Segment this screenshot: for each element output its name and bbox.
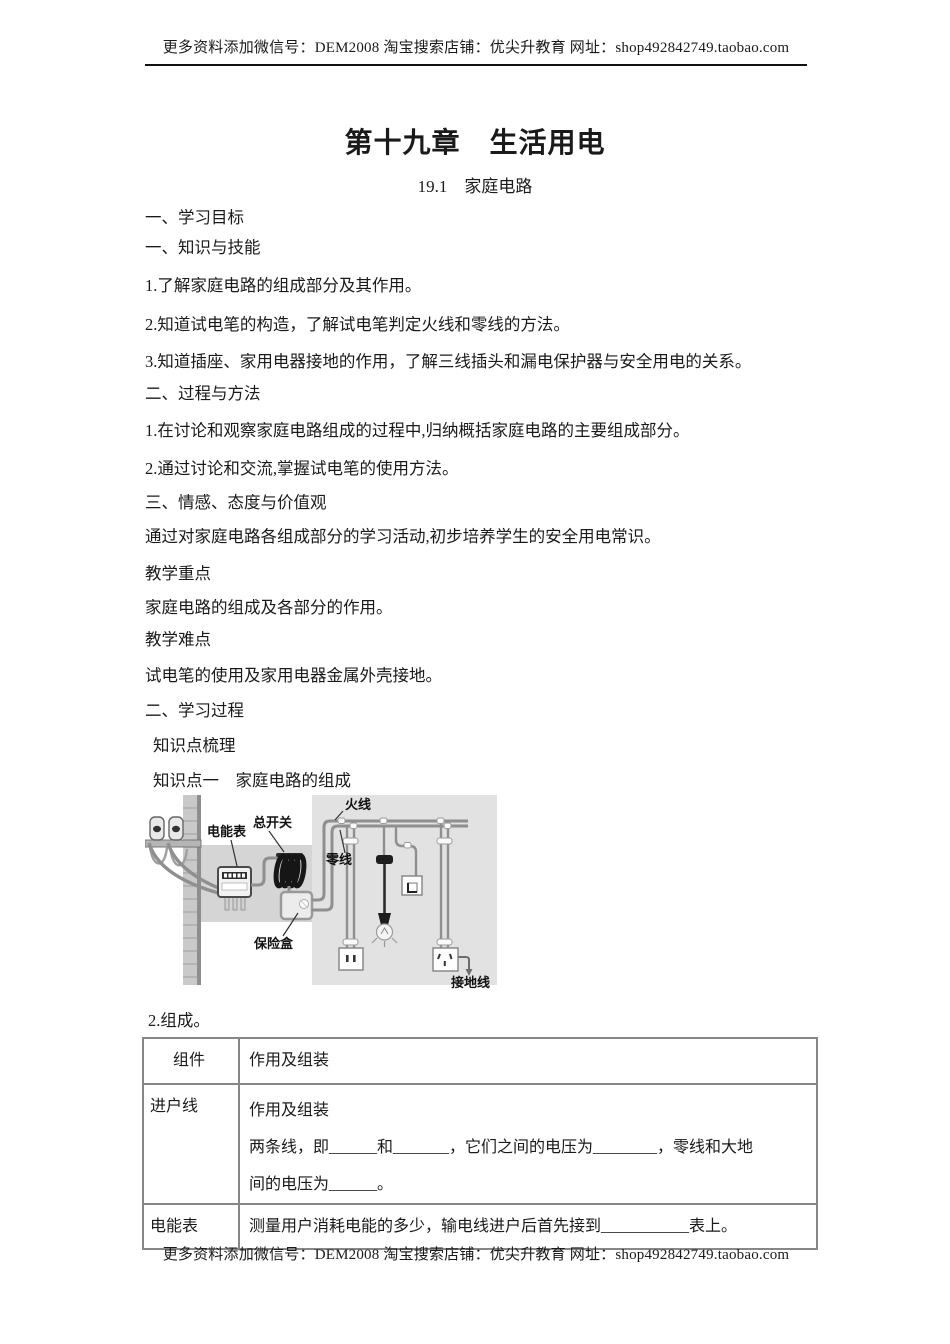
paragraph: 通过对家庭电路各组成部分的学习活动,初步培养学生的安全用电常识。	[145, 523, 661, 547]
header-component: 组件	[143, 1038, 239, 1084]
outlet-three-hole	[433, 948, 458, 971]
cell-line: 间的电压为______。	[249, 1166, 810, 1203]
page-footer: 更多资料添加微信号：DEM2008 淘宝搜索店铺：优尖升教育 网址：shop49…	[145, 1243, 807, 1264]
paragraph: 1.在讨论和观察家庭电路组成的过程中,归纳概括家庭电路的主要组成部分。	[145, 417, 690, 441]
cell-line: 两条线，即______和_______，它们之间的电压为________，零线和…	[249, 1129, 810, 1166]
paragraph: 试电笔的使用及家用电器金属外壳接地。	[145, 662, 442, 686]
fuse-box-label: 保险盒	[253, 936, 294, 951]
ground-wire-label: 接地线	[451, 975, 490, 990]
circuit-diagram: 电能表 总开关 保险盒 火线 零线 接地线	[145, 790, 505, 992]
paragraph: 一、知识与技能	[145, 234, 261, 258]
page-title: 第十九章 生活用电	[0, 121, 950, 161]
cell-line: 作用及组装	[249, 1092, 810, 1129]
section-subtitle: 19.1 家庭电路	[0, 172, 950, 197]
paragraph: 家庭电路的组成及各部分的作用。	[145, 594, 393, 618]
utility-pole	[183, 795, 201, 985]
list-item-composition: 2.组成。	[148, 1007, 210, 1031]
main-switch-label: 总开关	[253, 815, 292, 830]
cell-function: 作用及组装 两条线，即______和_______，它们之间的电压为______…	[239, 1084, 817, 1204]
paragraph: 1.了解家庭电路的组成部分及其作用。	[145, 272, 421, 296]
paragraph: 三、情感、态度与价值观	[145, 489, 327, 513]
paragraph: 2.通过讨论和交流,掌握试电笔的使用方法。	[145, 455, 459, 479]
paragraph: 教学重点	[145, 560, 211, 584]
outlet-two-hole	[339, 948, 363, 970]
paragraph: 二、过程与方法	[145, 380, 261, 404]
paragraph: 知识点梳理	[153, 732, 236, 756]
crossarm	[145, 840, 201, 847]
table-row: 进户线 作用及组装 两条线，即______和_______，它们之间的电压为__…	[143, 1084, 817, 1204]
components-table: 组件 作用及组装 进户线 作用及组装 两条线，即______和_______，它…	[142, 1037, 818, 1250]
neutral-wire-label: 零线	[325, 852, 352, 867]
meter-label: 电能表	[207, 824, 247, 839]
live-wire-label: 火线	[345, 797, 371, 812]
paragraph: 知识点一 家庭电路的组成	[153, 767, 351, 791]
paragraph: 3.知道插座、家用电器接地的作用，了解三线插头和漏电保护器与安全用电的关系。	[145, 348, 751, 372]
paragraph: 二、学习过程	[145, 697, 244, 721]
worksheet-page: 更多资料添加微信号：DEM2008 淘宝搜索店铺：优尖升教育 网址：shop49…	[0, 0, 950, 1344]
light-bulb-icon	[377, 924, 393, 940]
page-header: 更多资料添加微信号：DEM2008 淘宝搜索店铺：优尖升教育 网址：shop49…	[145, 36, 807, 66]
paragraph: 一、学习目标	[145, 204, 244, 228]
table-header-row: 组件 作用及组装	[143, 1038, 817, 1084]
cell-component: 进户线	[143, 1084, 239, 1204]
header-function: 作用及组装	[239, 1038, 817, 1084]
paragraph: 教学难点	[145, 626, 211, 650]
paragraph: 2.知道试电笔的构造，了解试电笔判定火线和零线的方法。	[145, 311, 570, 335]
insulator-icon	[150, 817, 183, 840]
